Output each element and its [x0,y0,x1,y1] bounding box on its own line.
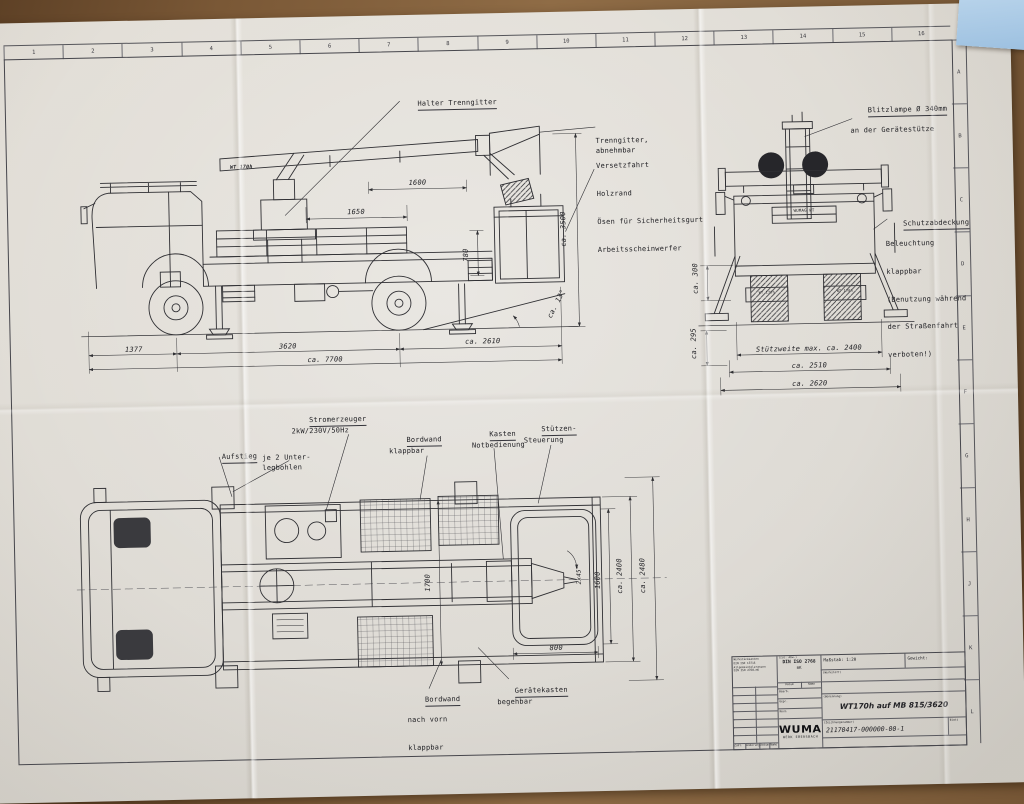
blatt-cell: Blatt [948,716,966,734]
storage-box-3 [358,616,434,668]
dim-295: ca. 295 [690,328,699,359]
label-stuetzen-steuerung: Stützen-Steuerung [523,415,577,445]
wheels [148,249,433,336]
storage-box-2 [438,495,499,545]
dim-2480: ca. 2480 [638,558,647,593]
dim-800: 800 [541,644,571,653]
outrigger-jacks [205,259,565,340]
tolerance-cell: (zul. Abw.) DIN ISO 2768 mK [776,655,821,682]
dim-7700: ca. 7700 [303,355,347,364]
storage-box-1 [360,499,431,552]
blue-sticky-note [956,0,1024,51]
dim-3620: 3620 [273,342,303,351]
label-bordwand-klappbar: Bordwandklappbar [389,426,443,456]
basket-top-view [510,509,598,646]
ground-line [698,321,914,326]
label-kasten-notbedienung: KastenNotbedienung [471,421,525,451]
photo-of-technical-drawing: { "scene": { "desk_color": "#7a5836", "n… [0,0,1024,768]
flash-lamp-left [758,152,785,179]
label-stromerzeuger: Stromerzeuger2kW/230V/50Hz [291,406,367,437]
datum-header-bottom: Datum [759,743,769,749]
control-plate [272,613,308,639]
cab-top-view [80,486,224,692]
wumag-logo-text: WUMAG [779,724,822,735]
label-geraetekasten: Gerätekastenbegehbar [497,677,568,708]
dim-780: 780 [462,248,470,261]
aenderung-header: Änderung [745,743,759,749]
company-logo: WUMAG WERK EBERSBACH [778,717,823,748]
ground-line [82,326,579,336]
label-bordwand-nach-vorn: Bordwand nach vorn klappbar [407,686,461,753]
dim-2610: ca. 2610 [461,337,505,346]
dimension-lines [699,262,901,396]
zust-header: Zust. [734,743,745,749]
truck-cab [81,191,209,289]
dim-2400: ca. 2400 [615,558,624,593]
work-basket [489,126,564,283]
turret-and-boom [220,135,517,264]
label-halter-trenngitter: Halter Trenngitter [399,89,497,111]
dim-2510: ca. 2510 [769,361,849,371]
dim-2x45: 2x45° [575,565,582,584]
outrigger-legs [703,223,907,321]
plan-view-drawing [68,403,674,708]
gewicht-cell: Gewicht: [904,652,964,667]
generator-top-view [265,504,341,559]
title-block-smallprint: Werkstückkanten DIN ISO 13715 Allgemeint… [732,656,777,687]
dual-wheels-right [823,274,861,321]
dimension-lines [85,133,587,373]
label-versetzfahrt-group: Versetzfahrt Holzrand Ösen für Sicherhei… [596,142,704,255]
dim-1650: 1650 [341,208,371,217]
dim-1600-plan: 1600 [594,571,602,589]
boom-top-view [221,558,577,610]
title-block: Werkstückkanten DIN ISO 13715 Allgemeint… [731,651,967,750]
dim-1600-side: 1600 [402,178,432,187]
truck-body-rear [716,189,894,303]
name-header-bottom: Name [769,742,778,748]
dim-1377: 1377 [120,345,148,354]
drawing-sheet: 12 34 56 78 910 1112 1314 1516 AB CD EF … [0,2,1024,804]
dim-3500: ca. 3500 [559,211,568,246]
label-unterlegbohlen: je 2 Unter-legbohlen [262,435,311,473]
dim-1700: 1700 [424,574,432,592]
dual-wheels-left [750,275,788,322]
leader-lines [283,97,598,238]
